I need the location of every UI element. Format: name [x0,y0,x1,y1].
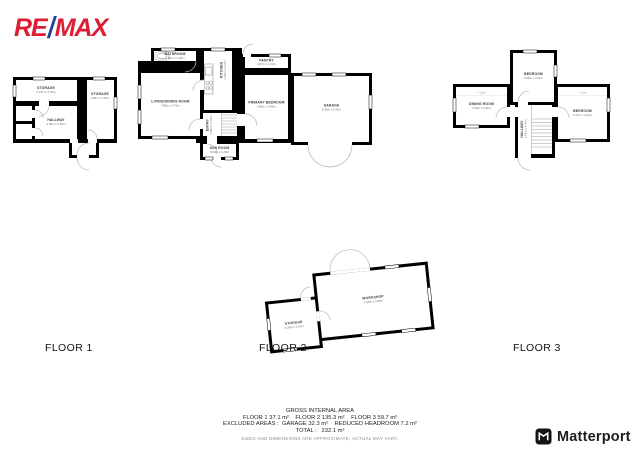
room-dims: 3.86m x 4.86m [257,105,277,109]
headroom-right-label: < 1.5m [578,91,587,95]
room-dims: 2.06m x 1.36m [165,56,185,60]
room-dims: 4.36m x 3.41m [472,106,492,110]
outbuilding-rotated: WORKSHOP 7.96m x 3.96m STORAGE 4.26m x 2… [260,242,435,354]
remax-re-text: RE [14,14,47,42]
matterport-logo: Matterport [535,428,631,445]
room-dims: 3.08m x 1.62m [209,115,213,135]
floor1-plan: STORAGE 2.07m x 2.45m HALLWAY 2.06m x 4.… [13,77,121,173]
room-dims: 4.85m x 4.75m [161,104,181,108]
room-dims: 2.06m x 2.16m [223,60,227,80]
floor-3-caption: FLOOR 3 [513,342,561,354]
remax-max-text: MAX [55,14,108,42]
floor-1-caption: FLOOR 1 [45,342,93,354]
floor-2-caption: FLOOR 2 [259,342,307,354]
room-dims: 5.96m x 5.41m [322,108,342,112]
summary-excluded-line: EXCLUDED AREAS : GARAGE 32.3 m² REDUCED … [0,421,640,428]
room-dims: 1.04m x 4.34m [524,119,528,139]
room-dims: 2.86m x 4.61m [90,96,110,100]
summary-title: GROSS INTERNAL AREA [0,408,640,415]
room-dims: 2.07m x 2.45m [36,90,56,94]
floor3-plan: < 1.5m < 1.5m BEDROOM 3.05m x 4.31m DINI… [453,43,611,167]
floor2-plan: BATHROOM 2.06m x 1.36m KITCHEN 2.06m x 2… [137,40,377,172]
matterport-label: Matterport [557,429,631,445]
summary-floors-line: FLOOR 1 37.1 m² FLOOR 2 135.3 m² FLOOR 3… [0,415,640,422]
headroom-left-label: < 1.5m [477,91,486,95]
matterport-icon [535,428,552,445]
room-dims: 3.09m x 1.20m [210,150,230,154]
floorplan-sheet: RE/MAX [0,0,640,452]
room-dims: 2.06m x 4.60m [46,122,66,126]
room-dims: 3.05m x 4.31m [524,76,544,80]
room-dims: 4.07m x 1.40m [257,62,277,66]
remax-logo: RE/MAX [14,14,107,43]
room-dims: 4.47m x 4.01m [573,113,593,117]
remax-slash-icon: / [47,11,55,46]
